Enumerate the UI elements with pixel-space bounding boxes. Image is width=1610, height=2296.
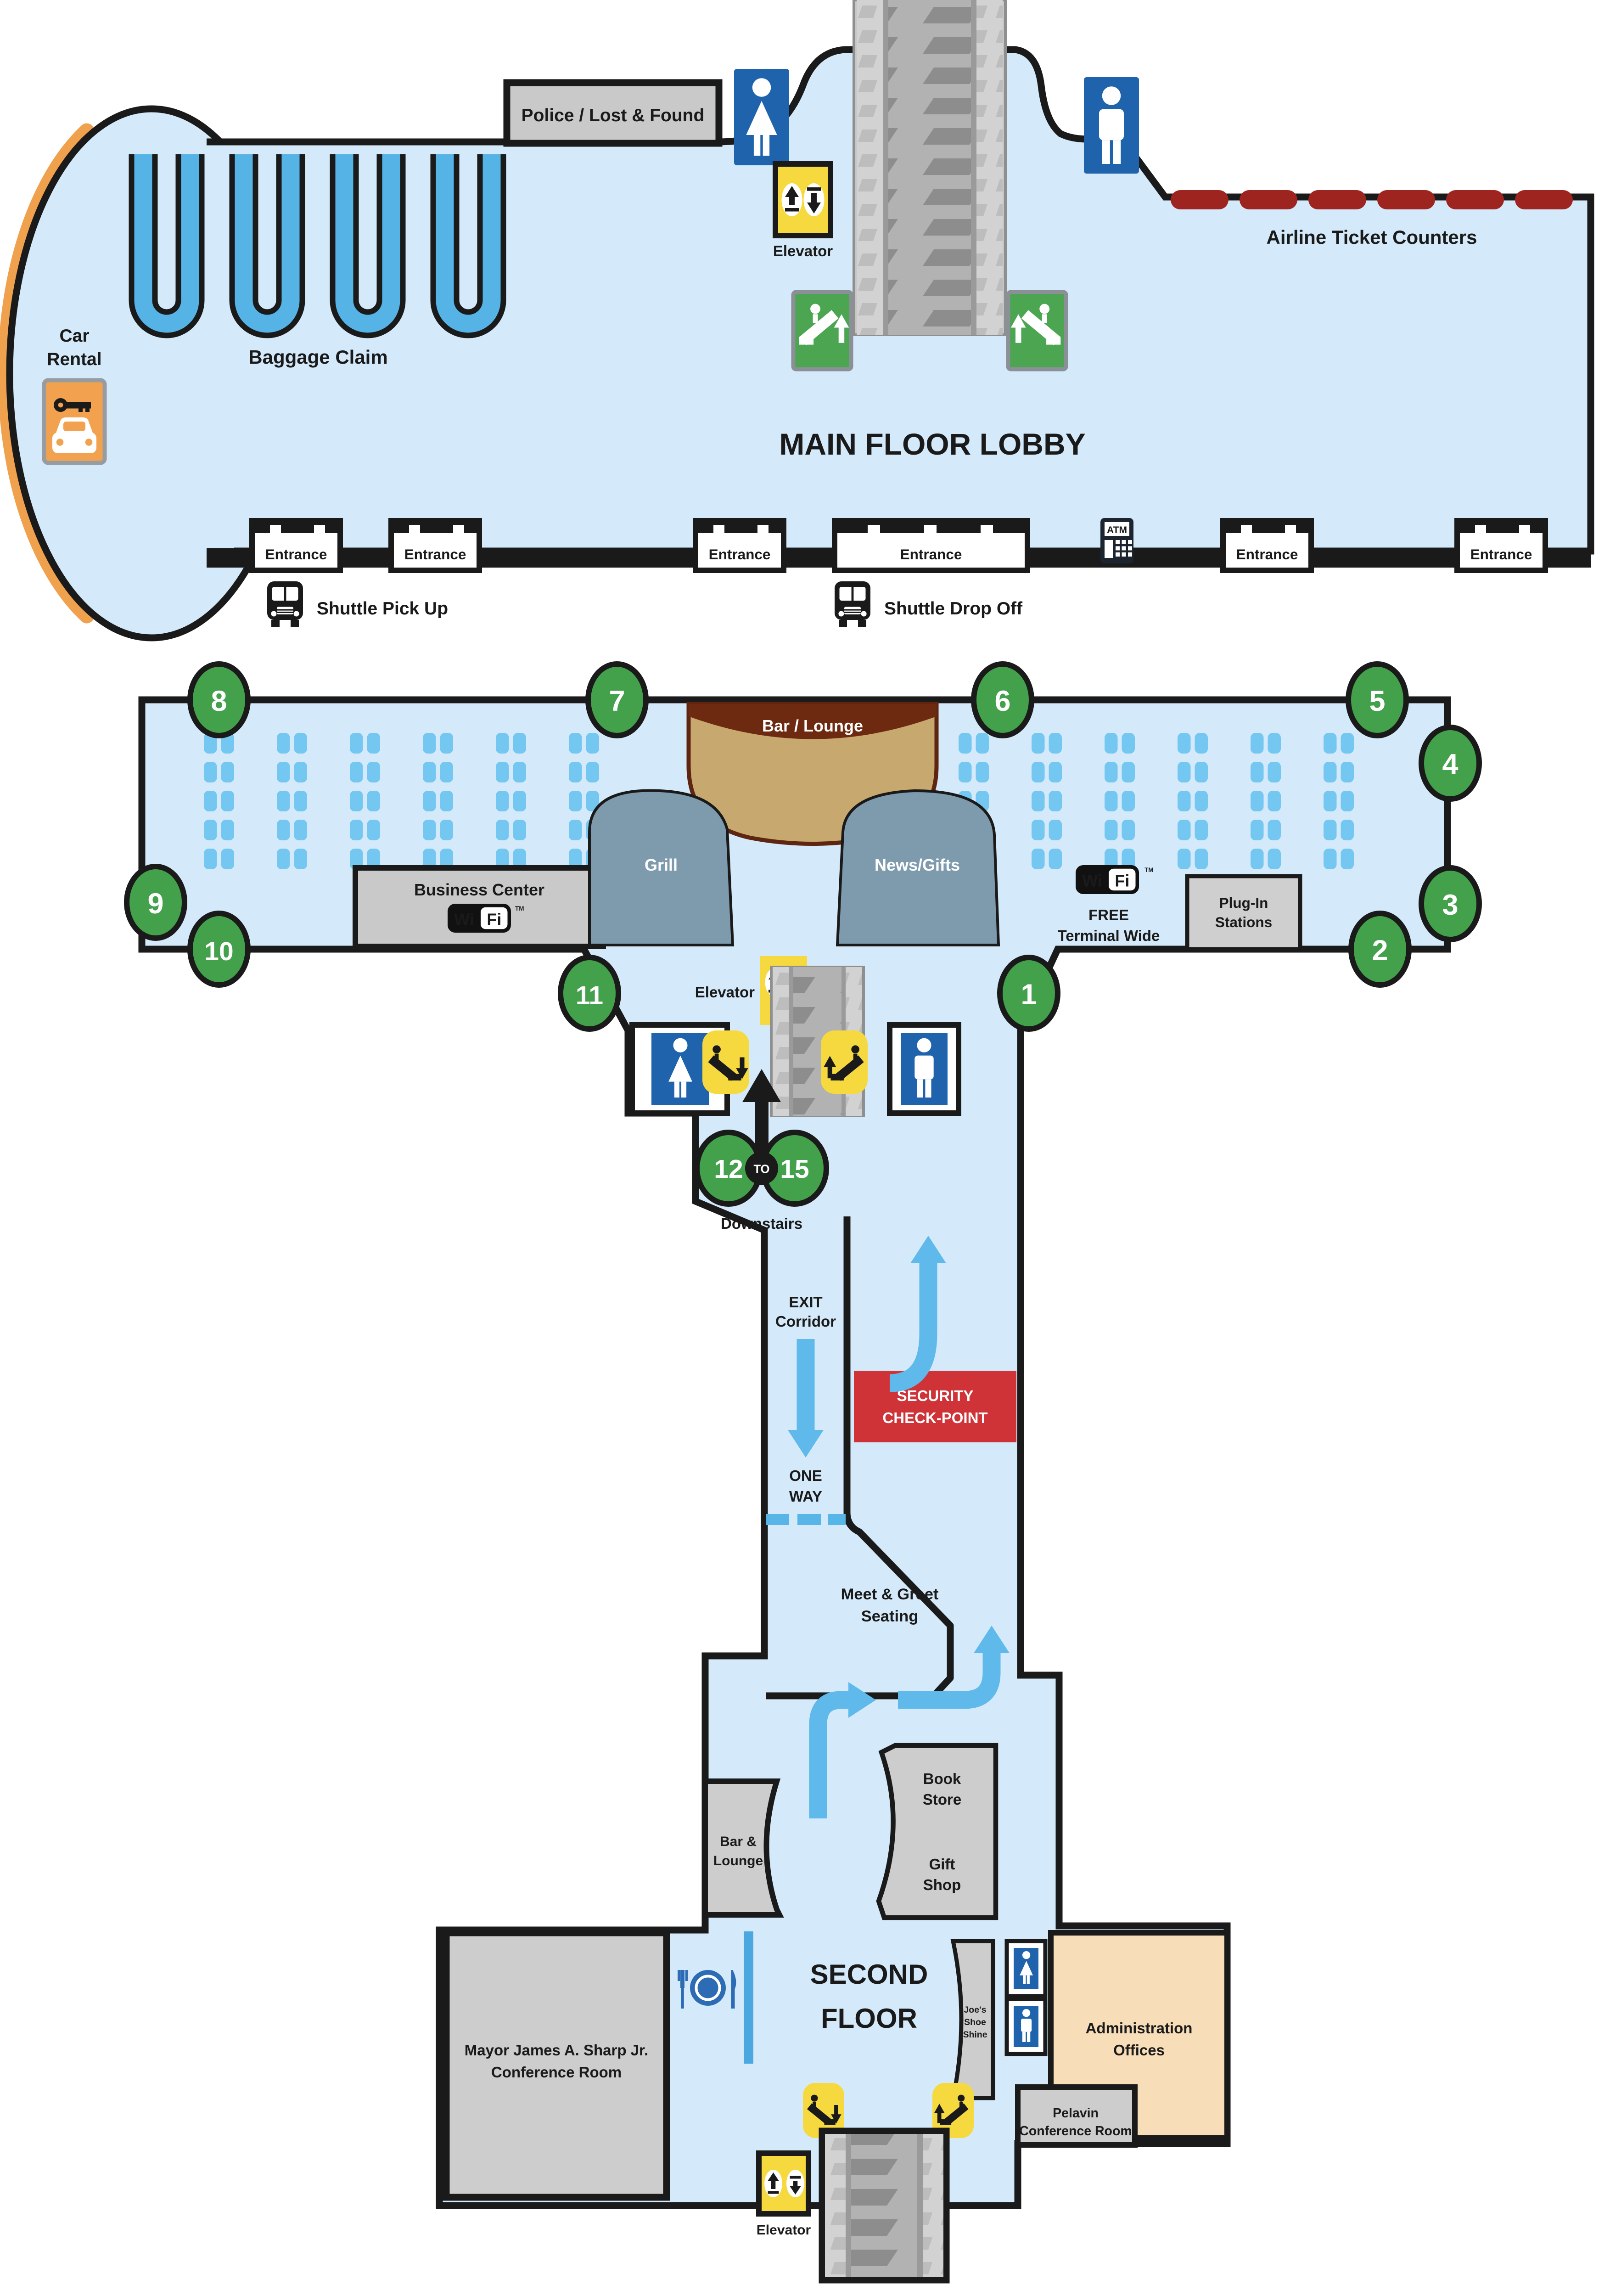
seat xyxy=(423,733,436,754)
svg-text:Grill: Grill xyxy=(645,855,678,874)
svg-text:Terminal Wide: Terminal Wide xyxy=(1058,927,1160,944)
terminal-map: Wi Fi xyxy=(0,0,1610,2296)
entrance-1: Entrance xyxy=(252,521,340,570)
seat xyxy=(350,733,363,754)
seat xyxy=(1324,820,1337,840)
gate-2: 2 xyxy=(1351,913,1409,985)
police-lost-found: Police / Lost & Found xyxy=(507,83,719,143)
seat xyxy=(423,820,436,840)
seat xyxy=(1122,820,1135,840)
svg-text:Business Center: Business Center xyxy=(414,880,544,899)
svg-text:Gift: Gift xyxy=(929,1856,955,1873)
seat xyxy=(1195,820,1208,840)
escalator-shaft-top xyxy=(854,0,1005,335)
svg-text:Lounge: Lounge xyxy=(713,1853,763,1868)
seat xyxy=(496,733,509,754)
svg-text:News/Gifts: News/Gifts xyxy=(875,855,960,874)
seat xyxy=(1032,762,1045,782)
svg-text:9: 9 xyxy=(147,888,163,920)
seat xyxy=(496,820,509,840)
svg-text:Joe's: Joe's xyxy=(964,2005,986,2015)
seat xyxy=(1251,820,1264,840)
elevator-top-label: Elevator xyxy=(773,242,833,259)
seat xyxy=(277,733,290,754)
seat xyxy=(1324,791,1337,811)
seat xyxy=(1251,849,1264,869)
svg-text:7: 7 xyxy=(609,685,625,717)
seat xyxy=(1049,733,1062,754)
elevator-second-floor: Elevator xyxy=(757,2153,811,2238)
mayor-conference-room: Mayor James A. Sharp Jr. Conference Room xyxy=(446,1933,667,2197)
terminal-map-viewport: Wi Fi xyxy=(0,0,1610,2296)
svg-text:Bar &: Bar & xyxy=(720,1834,757,1849)
seat xyxy=(440,791,454,811)
seat xyxy=(1195,762,1208,782)
seat xyxy=(959,733,972,754)
seat xyxy=(1105,791,1118,811)
seat xyxy=(1251,762,1264,782)
seat xyxy=(1049,820,1062,840)
seat xyxy=(221,820,235,840)
escalator-down-sign-left xyxy=(702,1030,749,1094)
airline-ticket-counters-label: Airline Ticket Counters xyxy=(1266,226,1477,248)
svg-text:Shop: Shop xyxy=(923,1876,961,1893)
svg-text:Mayor James A. Sharp Jr.: Mayor James A. Sharp Jr. xyxy=(465,2042,648,2059)
seat xyxy=(367,762,381,782)
entrance-2: Entrance xyxy=(391,521,479,570)
security-checkpoint: SECURITY CHECK-POINT xyxy=(854,1371,1016,1442)
pelavin-conference-room: Pelavin Conference Room xyxy=(1018,2087,1135,2145)
wifi-logo-business-center xyxy=(448,904,511,933)
seat xyxy=(1251,791,1264,811)
elevator-second-floor-label: Elevator xyxy=(757,2223,811,2238)
seat xyxy=(1324,733,1337,754)
seat xyxy=(1122,791,1135,811)
svg-text:11: 11 xyxy=(576,981,603,1010)
business-center: Business Center TM xyxy=(355,868,603,946)
seat xyxy=(1324,849,1337,869)
svg-text:TM: TM xyxy=(515,905,524,912)
mens-restroom-concourse xyxy=(890,1025,959,1113)
svg-text:3: 3 xyxy=(1442,889,1458,921)
concourse-section: Bar / Lounge Plug-In Stations Plug-In St… xyxy=(127,664,1479,2280)
seat xyxy=(513,733,527,754)
gate-5: 5 xyxy=(1348,664,1406,736)
seat xyxy=(1268,849,1281,869)
seat xyxy=(1341,849,1354,869)
svg-text:Entrance: Entrance xyxy=(900,546,962,563)
seat xyxy=(1049,762,1062,782)
seat xyxy=(277,849,290,869)
gate-7: 7 xyxy=(588,664,646,736)
seat xyxy=(440,733,454,754)
seat xyxy=(1178,733,1191,754)
svg-text:8: 8 xyxy=(211,685,227,717)
svg-text:Entrance: Entrance xyxy=(1236,546,1298,563)
seat xyxy=(569,733,582,754)
exit-corridor-label-2: Corridor xyxy=(775,1313,836,1330)
svg-text:Entrance: Entrance xyxy=(265,546,327,563)
svg-text:Store: Store xyxy=(923,1791,961,1808)
seat xyxy=(221,791,235,811)
seat xyxy=(1324,762,1337,782)
seat xyxy=(221,849,235,869)
escalator-up-sign-right xyxy=(1008,292,1066,369)
seat xyxy=(976,733,989,754)
svg-text:SECURITY: SECURITY xyxy=(897,1387,974,1404)
svg-text:ATM: ATM xyxy=(1107,525,1127,535)
womens-restroom-icon xyxy=(734,69,789,165)
entrance-5: Entrance xyxy=(1223,521,1311,570)
seat xyxy=(367,791,381,811)
seat xyxy=(294,791,308,811)
svg-text:FREE: FREE xyxy=(1088,906,1129,923)
svg-text:TM: TM xyxy=(1144,867,1154,873)
svg-text:4: 4 xyxy=(1442,748,1458,781)
seat xyxy=(440,762,454,782)
seat xyxy=(496,791,509,811)
grill: Grill xyxy=(589,791,733,945)
seat xyxy=(1049,791,1062,811)
seat xyxy=(1195,791,1208,811)
shuttle-pickup-bus-icon xyxy=(267,581,303,627)
svg-text:CHECK-POINT: CHECK-POINT xyxy=(882,1409,987,1426)
book-store-gift-shop: Book Store Gift Shop xyxy=(879,1745,996,1918)
seat xyxy=(569,762,582,782)
svg-text:Stations: Stations xyxy=(1215,914,1272,930)
svg-text:6: 6 xyxy=(994,685,1010,717)
escalator-up-sign-left xyxy=(793,292,851,369)
baggage-claim-label: Baggage Claim xyxy=(248,346,387,368)
seat xyxy=(1341,762,1354,782)
svg-text:2: 2 xyxy=(1372,934,1388,967)
seat xyxy=(1122,733,1135,754)
seat xyxy=(1032,791,1045,811)
seat xyxy=(1195,849,1208,869)
svg-text:Police / Lost & Found: Police / Lost & Found xyxy=(522,106,705,125)
elevator-top: Elevator xyxy=(773,164,833,259)
svg-text:TO: TO xyxy=(754,1163,770,1176)
atm-icon: ATM xyxy=(1100,518,1133,563)
seat xyxy=(513,791,527,811)
seat xyxy=(423,791,436,811)
svg-text:10: 10 xyxy=(204,937,233,966)
seat xyxy=(496,762,509,782)
seat xyxy=(1251,733,1264,754)
seat xyxy=(1178,791,1191,811)
seat xyxy=(1178,820,1191,840)
svg-text:12: 12 xyxy=(714,1154,743,1184)
seat xyxy=(1049,849,1062,869)
svg-text:Administration: Administration xyxy=(1086,2020,1193,2037)
seat xyxy=(569,820,582,840)
seat xyxy=(350,791,363,811)
svg-text:Plug-In: Plug-In xyxy=(1219,895,1268,911)
floor-plan-svg: Wi Fi xyxy=(0,0,1610,2296)
seat xyxy=(277,820,290,840)
seat xyxy=(367,820,381,840)
svg-text:Book: Book xyxy=(923,1770,961,1787)
gate-8: 8 xyxy=(190,664,248,736)
seat xyxy=(1178,762,1191,782)
seat xyxy=(976,762,989,782)
seat xyxy=(1032,849,1045,869)
shuttle-drop-off-label: Shuttle Drop Off xyxy=(884,599,1023,619)
seat xyxy=(569,791,582,811)
exit-corridor-label-1: EXIT xyxy=(789,1294,822,1311)
seat xyxy=(1341,733,1354,754)
wifi-logo-free xyxy=(1076,865,1139,894)
bar-lounge-label: Bar / Lounge xyxy=(762,716,863,735)
seat xyxy=(959,762,972,782)
seat xyxy=(586,762,600,782)
car-rental-label-2: Rental xyxy=(47,349,101,369)
seat xyxy=(204,762,217,782)
seat xyxy=(367,733,381,754)
bar-lounge-second-floor: Bar & Lounge xyxy=(705,1781,780,1915)
seat xyxy=(440,820,454,840)
svg-text:Shoe: Shoe xyxy=(964,2017,986,2027)
seat xyxy=(1032,733,1045,754)
mens-restroom-second-floor xyxy=(1007,1999,1045,2054)
gate-1: 1 xyxy=(1000,957,1058,1029)
svg-text:Conference Room: Conference Room xyxy=(491,2064,622,2081)
car-rental-label-1: Car xyxy=(59,326,89,346)
one-way-label-1: ONE xyxy=(789,1467,822,1484)
gate-11: 11 xyxy=(561,957,618,1029)
seat xyxy=(350,820,363,840)
seat xyxy=(294,820,308,840)
svg-text:1: 1 xyxy=(1021,979,1037,1011)
entrance-3: Entrance xyxy=(696,521,784,570)
seat xyxy=(423,762,436,782)
seat xyxy=(204,791,217,811)
second-floor-title-1: SECOND xyxy=(810,1959,928,1990)
entrance-6: Entrance xyxy=(1457,521,1545,570)
seat xyxy=(277,791,290,811)
seat xyxy=(277,762,290,782)
gate-10: 10 xyxy=(190,913,248,985)
one-way-label-2: WAY xyxy=(789,1488,822,1505)
seat xyxy=(1268,762,1281,782)
seat xyxy=(1122,762,1135,782)
shuttle-pick-up-label: Shuttle Pick Up xyxy=(317,599,448,619)
gate-4: 4 xyxy=(1421,727,1479,799)
womens-restroom-second-floor xyxy=(1007,1941,1045,1996)
seat xyxy=(1268,733,1281,754)
seat xyxy=(221,762,235,782)
seat xyxy=(294,762,308,782)
shuttle-dropoff-bus-icon xyxy=(835,581,870,627)
seat xyxy=(294,849,308,869)
downstairs-label: Downstairs xyxy=(721,1215,802,1232)
seat xyxy=(204,820,217,840)
elevator-concourse-label: Elevator xyxy=(695,984,755,1001)
svg-text:Entrance: Entrance xyxy=(1470,546,1532,563)
svg-text:Offices: Offices xyxy=(1113,2042,1165,2059)
car-rental-icon xyxy=(44,380,105,463)
seat xyxy=(513,762,527,782)
main-floor-lobby-title: MAIN FLOOR LOBBY xyxy=(779,427,1085,461)
svg-text:Entrance: Entrance xyxy=(709,546,771,563)
svg-text:Pelavin: Pelavin xyxy=(1053,2106,1099,2121)
mens-restroom-icon xyxy=(1084,77,1139,174)
svg-text:15: 15 xyxy=(780,1154,809,1184)
glass-partition xyxy=(744,1931,753,2064)
seat xyxy=(1032,820,1045,840)
seat xyxy=(350,762,363,782)
seat xyxy=(1268,791,1281,811)
gate-9: 9 xyxy=(127,867,185,938)
svg-text:Shine: Shine xyxy=(963,2030,987,2040)
seat xyxy=(1268,820,1281,840)
news-gifts: News/Gifts xyxy=(837,791,999,945)
seat xyxy=(1105,762,1118,782)
svg-text:Entrance: Entrance xyxy=(404,546,466,563)
seat xyxy=(586,733,600,754)
corridor-exit-gate xyxy=(766,1514,846,1525)
gate-6: 6 xyxy=(974,664,1032,736)
gate-3: 3 xyxy=(1421,868,1479,940)
meet-greet-label-1: Meet & Greet xyxy=(841,1586,939,1603)
seat xyxy=(294,733,308,754)
escalator-up-sign-right-stem xyxy=(821,1030,868,1094)
plug-in-stations-box: Plug-In Stations xyxy=(1187,876,1300,949)
seat xyxy=(1341,820,1354,840)
seat xyxy=(1195,733,1208,754)
escalator-shaft-second-floor xyxy=(822,2131,946,2280)
svg-text:5: 5 xyxy=(1369,685,1385,717)
seat xyxy=(1178,849,1191,869)
second-floor-title-2: FLOOR xyxy=(821,2003,917,2034)
svg-text:Conference Room: Conference Room xyxy=(1019,2124,1132,2138)
seat xyxy=(1341,791,1354,811)
seat xyxy=(1105,820,1118,840)
meet-greet-label-2: Seating xyxy=(861,1608,919,1625)
seat xyxy=(204,849,217,869)
main-floor-section: Police / Lost & Found Elevator Bag xyxy=(6,0,1591,638)
entrance-4: Entrance xyxy=(835,521,1027,570)
seat xyxy=(1105,733,1118,754)
seat xyxy=(513,820,527,840)
